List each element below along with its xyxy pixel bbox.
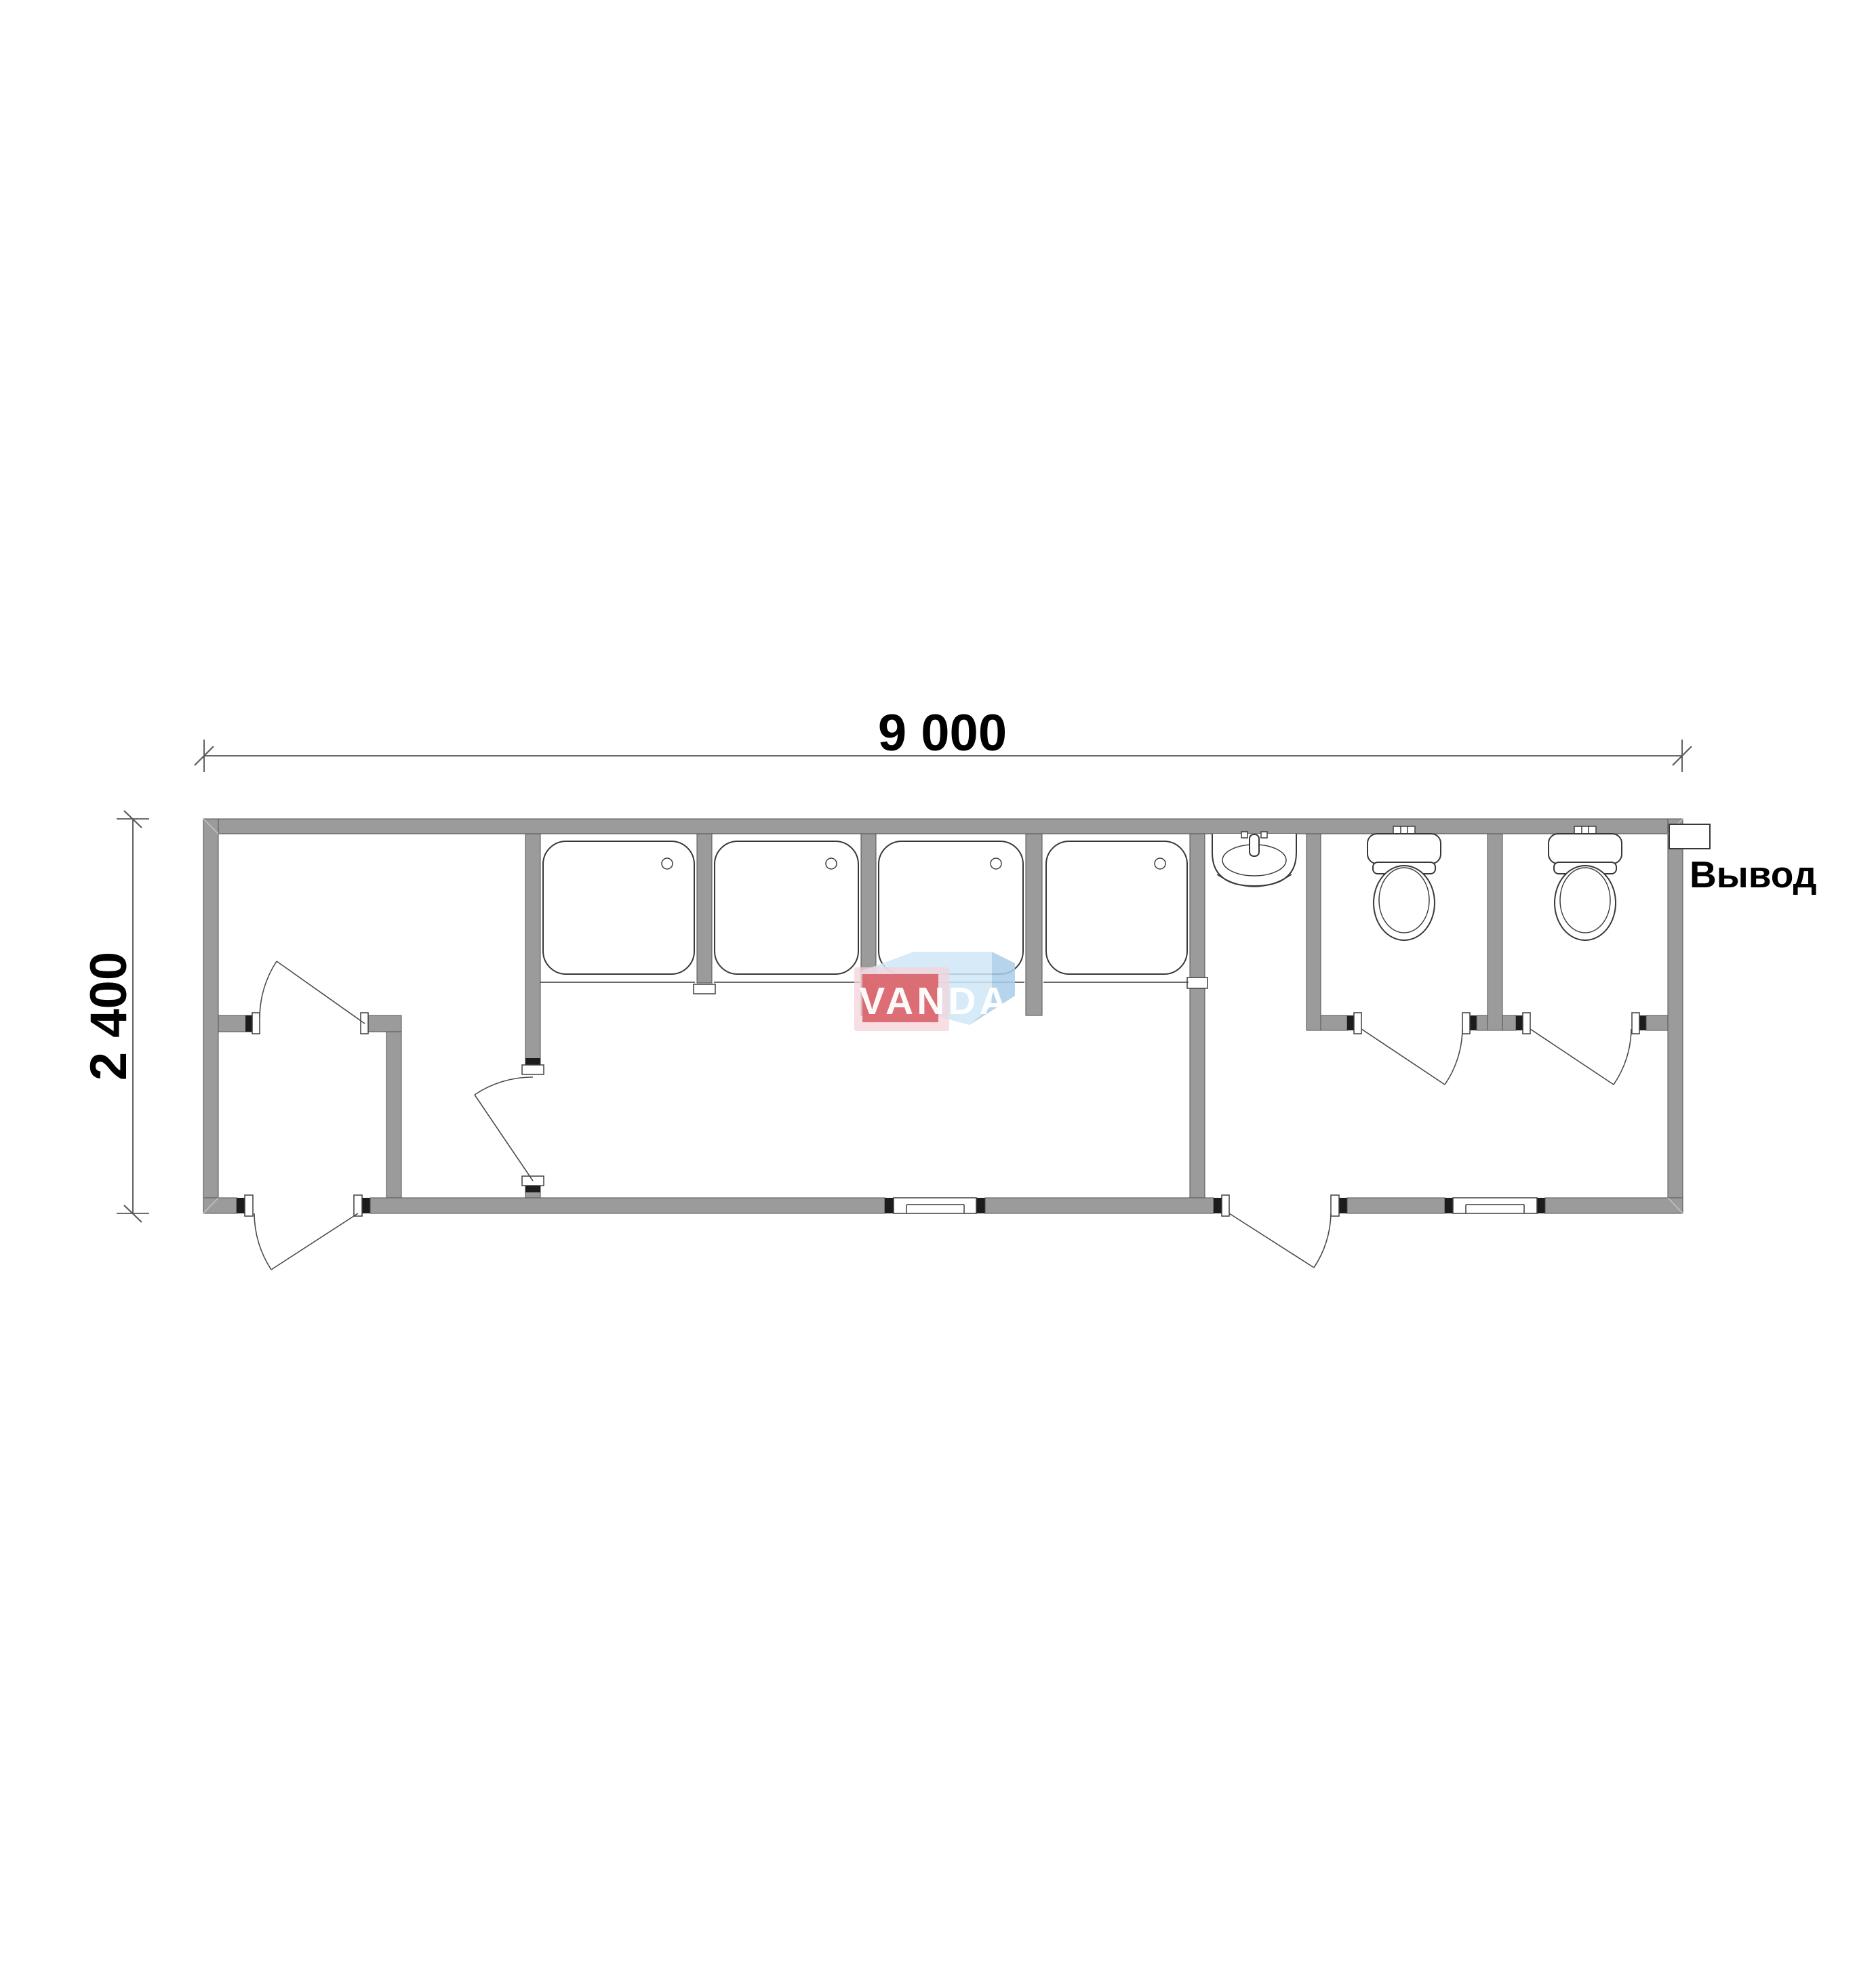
outlet-label: Вывод — [1690, 853, 1817, 895]
door-wc-stall-2 — [1530, 1029, 1631, 1085]
wall-right — [1668, 819, 1683, 1213]
jamb — [245, 1195, 253, 1216]
toilet-bowl — [1374, 866, 1435, 940]
window-2 — [1453, 1198, 1537, 1213]
faucet-handle-icon — [1241, 832, 1248, 838]
wall-vestibule-right — [386, 1032, 401, 1198]
wall-bottom — [370, 1198, 885, 1213]
toilet-2 — [1549, 826, 1622, 940]
jamb — [522, 1065, 544, 1074]
jamb — [1523, 1013, 1530, 1034]
jamb — [1187, 977, 1208, 988]
washbasin — [1212, 832, 1296, 887]
wall-shower-room-left — [525, 834, 540, 1065]
wall-wc-divider-1 — [1306, 834, 1321, 1030]
jamb — [252, 1013, 260, 1034]
wall-wc-divider-2 — [1488, 834, 1502, 1030]
wall-sanitary-section — [1190, 834, 1205, 1198]
jamb — [354, 1195, 362, 1216]
jamb — [694, 984, 715, 994]
wall-wc-front — [1502, 1015, 1516, 1030]
jamb — [1354, 1013, 1361, 1034]
toilet-1 — [1368, 826, 1441, 940]
door-changing-room — [260, 961, 365, 1024]
wall-bottom — [1545, 1198, 1683, 1213]
wall-bottom — [985, 1198, 1214, 1213]
wall-left — [203, 819, 218, 1213]
jamb — [1331, 1195, 1339, 1216]
outlet-box — [1669, 824, 1710, 849]
dimension-width: 9 000 — [195, 704, 1692, 772]
shower-tray-4 — [1046, 841, 1187, 974]
door-shower-room — [475, 1077, 533, 1181]
toilet-tank — [1549, 834, 1622, 864]
door-entry-vestibule — [254, 1213, 358, 1270]
wall-bottom — [1347, 1198, 1445, 1213]
wall-shower-divider-3 — [1026, 834, 1042, 1015]
door-entry-corridor — [1229, 1213, 1331, 1268]
door-wc-stall-1 — [1361, 1029, 1462, 1085]
wall-shower-divider-1 — [697, 834, 712, 983]
faucet-icon — [1250, 834, 1259, 856]
floor-plan-drawing: 9 000 2 400 — [0, 0, 1876, 1976]
dimension-width-label: 9 000 — [878, 704, 1007, 762]
wall-wc-front — [1321, 1015, 1347, 1030]
wall-wc-front — [1477, 1015, 1488, 1030]
watermark-text: VANDA — [859, 980, 1010, 1023]
window-1 — [894, 1198, 976, 1213]
wall-top — [203, 819, 1683, 834]
jamb — [1462, 1013, 1470, 1034]
wall-wc-front — [1646, 1015, 1668, 1030]
wall-bottom — [203, 1198, 237, 1213]
floor-plan-sheet: 9 000 2 400 — [0, 0, 1876, 1976]
wall-vestibule-top — [368, 1015, 401, 1032]
watermark-vanda-logo: VANDA — [854, 952, 1015, 1031]
toilet-bowl — [1555, 866, 1616, 940]
dimension-height-label: 2 400 — [80, 952, 138, 1081]
toilet-tank — [1368, 834, 1441, 864]
dimension-height: 2 400 — [80, 811, 149, 1222]
faucet-handle-icon — [1261, 832, 1267, 838]
shower-tray-2 — [715, 841, 858, 974]
jamb — [1222, 1195, 1229, 1216]
jamb — [1632, 1013, 1639, 1034]
